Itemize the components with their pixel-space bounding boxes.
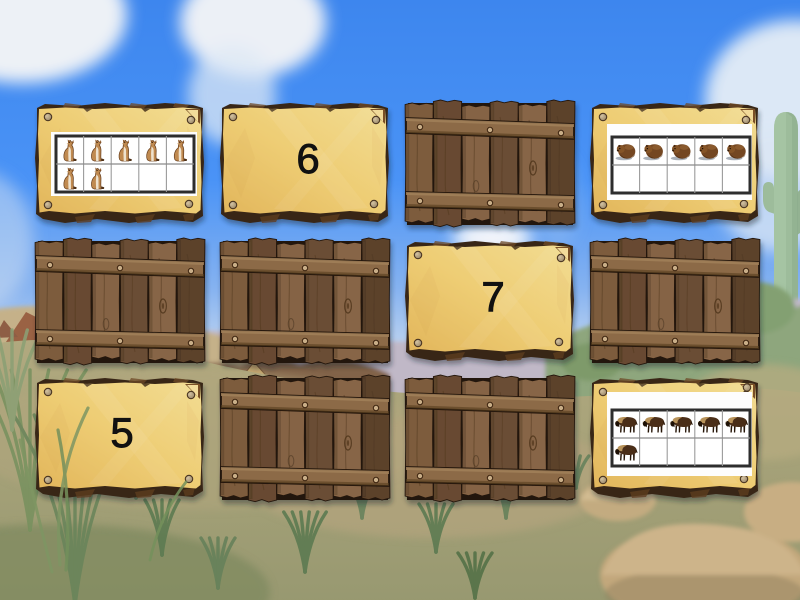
svg-text:6: 6 (296, 135, 319, 182)
svg-text:7: 7 (481, 273, 504, 320)
svg-text:5: 5 (110, 409, 133, 456)
